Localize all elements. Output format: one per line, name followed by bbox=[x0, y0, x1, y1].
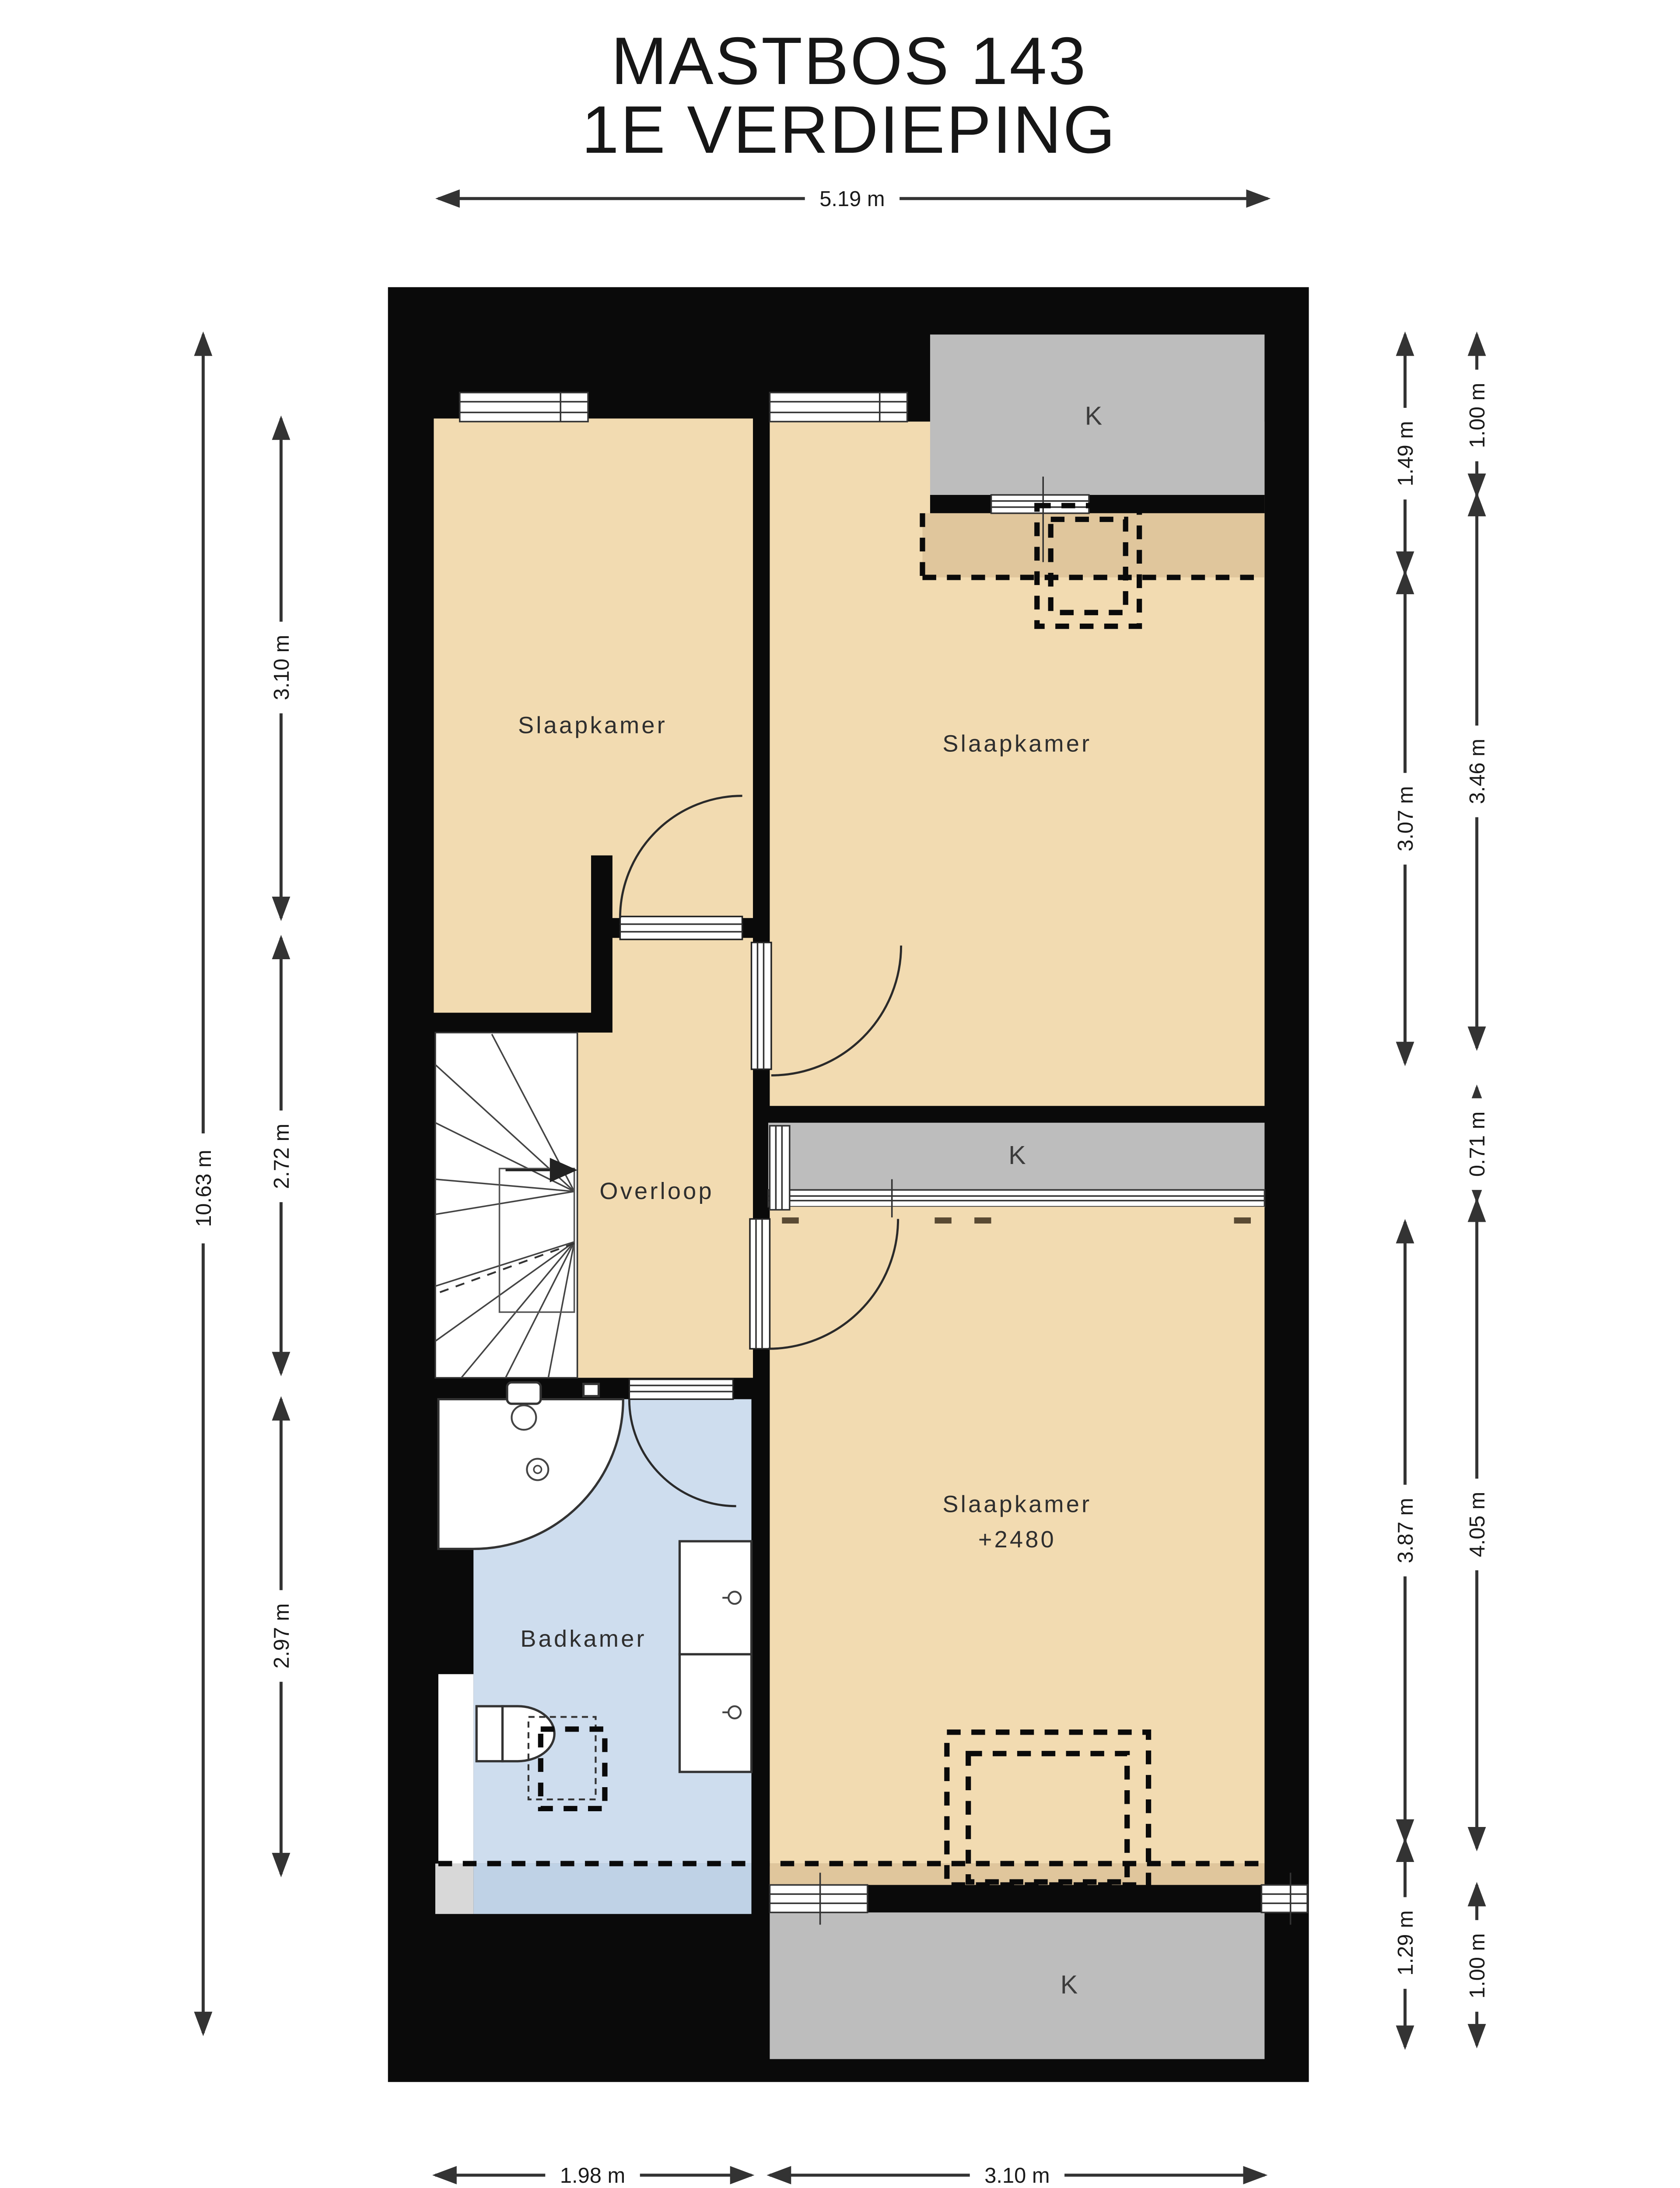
window-closet-mid-left bbox=[770, 1126, 789, 1210]
washbasin-bowl-icon bbox=[512, 1405, 536, 1430]
dim-label-right-inner-3: 3.87 m bbox=[1390, 1485, 1422, 1576]
svg-text:5.19 m: 5.19 m bbox=[819, 187, 885, 211]
svg-text:2.72 m: 2.72 m bbox=[270, 1124, 294, 1189]
dim-label-right-inner-1: 1.49 m bbox=[1390, 408, 1422, 499]
faucet-icon bbox=[584, 1384, 599, 1396]
dim-label-right-inner-2: 3.07 m bbox=[1390, 773, 1422, 864]
svg-text:4.05 m: 4.05 m bbox=[1466, 1492, 1489, 1557]
dim-label-right-outer-5: 1.00 m bbox=[1462, 1920, 1494, 2012]
svg-text:3.07 m: 3.07 m bbox=[1394, 786, 1417, 851]
svg-text:1.49 m: 1.49 m bbox=[1394, 421, 1417, 486]
dim-label-bottom-1: 1.98 m bbox=[545, 2158, 640, 2188]
dim-label-left-inner-3: 2.97 m bbox=[266, 1590, 298, 1682]
svg-text:3.10 m: 3.10 m bbox=[270, 635, 294, 700]
bedroom2-shaded-zone bbox=[922, 513, 1264, 578]
svg-text:3.10 m: 3.10 m bbox=[984, 2164, 1050, 2188]
svg-text:1.00 m: 1.00 m bbox=[1466, 383, 1489, 448]
window-bedroom1-top bbox=[460, 393, 588, 421]
label-bedroom1: Slaapkamer bbox=[518, 712, 667, 739]
svg-text:10.63 m: 10.63 m bbox=[192, 1150, 216, 1227]
bathroom-niche bbox=[438, 1674, 473, 1864]
window-mid-strip bbox=[768, 1190, 1264, 1206]
svg-text:3.87 m: 3.87 m bbox=[1394, 1498, 1417, 1563]
svg-text:2.97 m: 2.97 m bbox=[270, 1603, 294, 1669]
dim-label-right-inner-4: 1.29 m bbox=[1390, 1897, 1422, 1988]
dim-label-top: 5.19 m bbox=[805, 182, 899, 214]
label-closet-bottom: K bbox=[1060, 1970, 1078, 1999]
label-landing: Overloop bbox=[599, 1178, 714, 1204]
floorplan-canvas: MASTBOS 143 1E VERDIEPING bbox=[0, 0, 1680, 2188]
svg-text:1.29 m: 1.29 m bbox=[1394, 1910, 1417, 1975]
page-title-line1: MASTBOS 143 bbox=[611, 23, 1087, 98]
label-closet-mid: K bbox=[1008, 1140, 1026, 1170]
dryer bbox=[679, 1654, 751, 1772]
svg-text:0.71 m: 0.71 m bbox=[1466, 1112, 1489, 1177]
dim-label-bottom-2: 3.10 m bbox=[970, 2158, 1064, 2188]
washer bbox=[679, 1541, 751, 1654]
dim-label-right-outer-2: 3.46 m bbox=[1462, 726, 1494, 817]
svg-text:1.98 m: 1.98 m bbox=[560, 2164, 625, 2188]
dim-label-left-inner-2: 2.72 m bbox=[266, 1111, 298, 1202]
window-bedroom2-top bbox=[770, 393, 907, 421]
bathroom-corner-strip bbox=[435, 1864, 473, 1914]
page-title-line2: 1E VERDIEPING bbox=[581, 92, 1116, 167]
label-bedroom3: Slaapkamer bbox=[942, 1491, 1092, 1518]
label-bedroom3-height: +2480 bbox=[978, 1526, 1056, 1553]
bathroom-shaded-band bbox=[473, 1864, 751, 1914]
label-closet-top: K bbox=[1085, 401, 1102, 430]
closet-bottom-block bbox=[770, 1912, 1264, 2059]
dim-label-right-outer-4: 4.05 m bbox=[1462, 1479, 1494, 1570]
dim-label-left-inner-1: 3.10 m bbox=[266, 622, 298, 713]
dim-label-left-outer: 10.63 m bbox=[188, 1133, 220, 1243]
dim-label-right-outer-3: 0.71 m bbox=[1462, 1098, 1494, 1190]
label-bedroom2: Slaapkamer bbox=[942, 730, 1092, 757]
svg-text:1.00 m: 1.00 m bbox=[1466, 1933, 1489, 1999]
dim-label-right-outer-1: 1.00 m bbox=[1462, 370, 1494, 461]
svg-text:3.46 m: 3.46 m bbox=[1466, 739, 1489, 804]
label-bathroom: Badkamer bbox=[520, 1626, 646, 1652]
